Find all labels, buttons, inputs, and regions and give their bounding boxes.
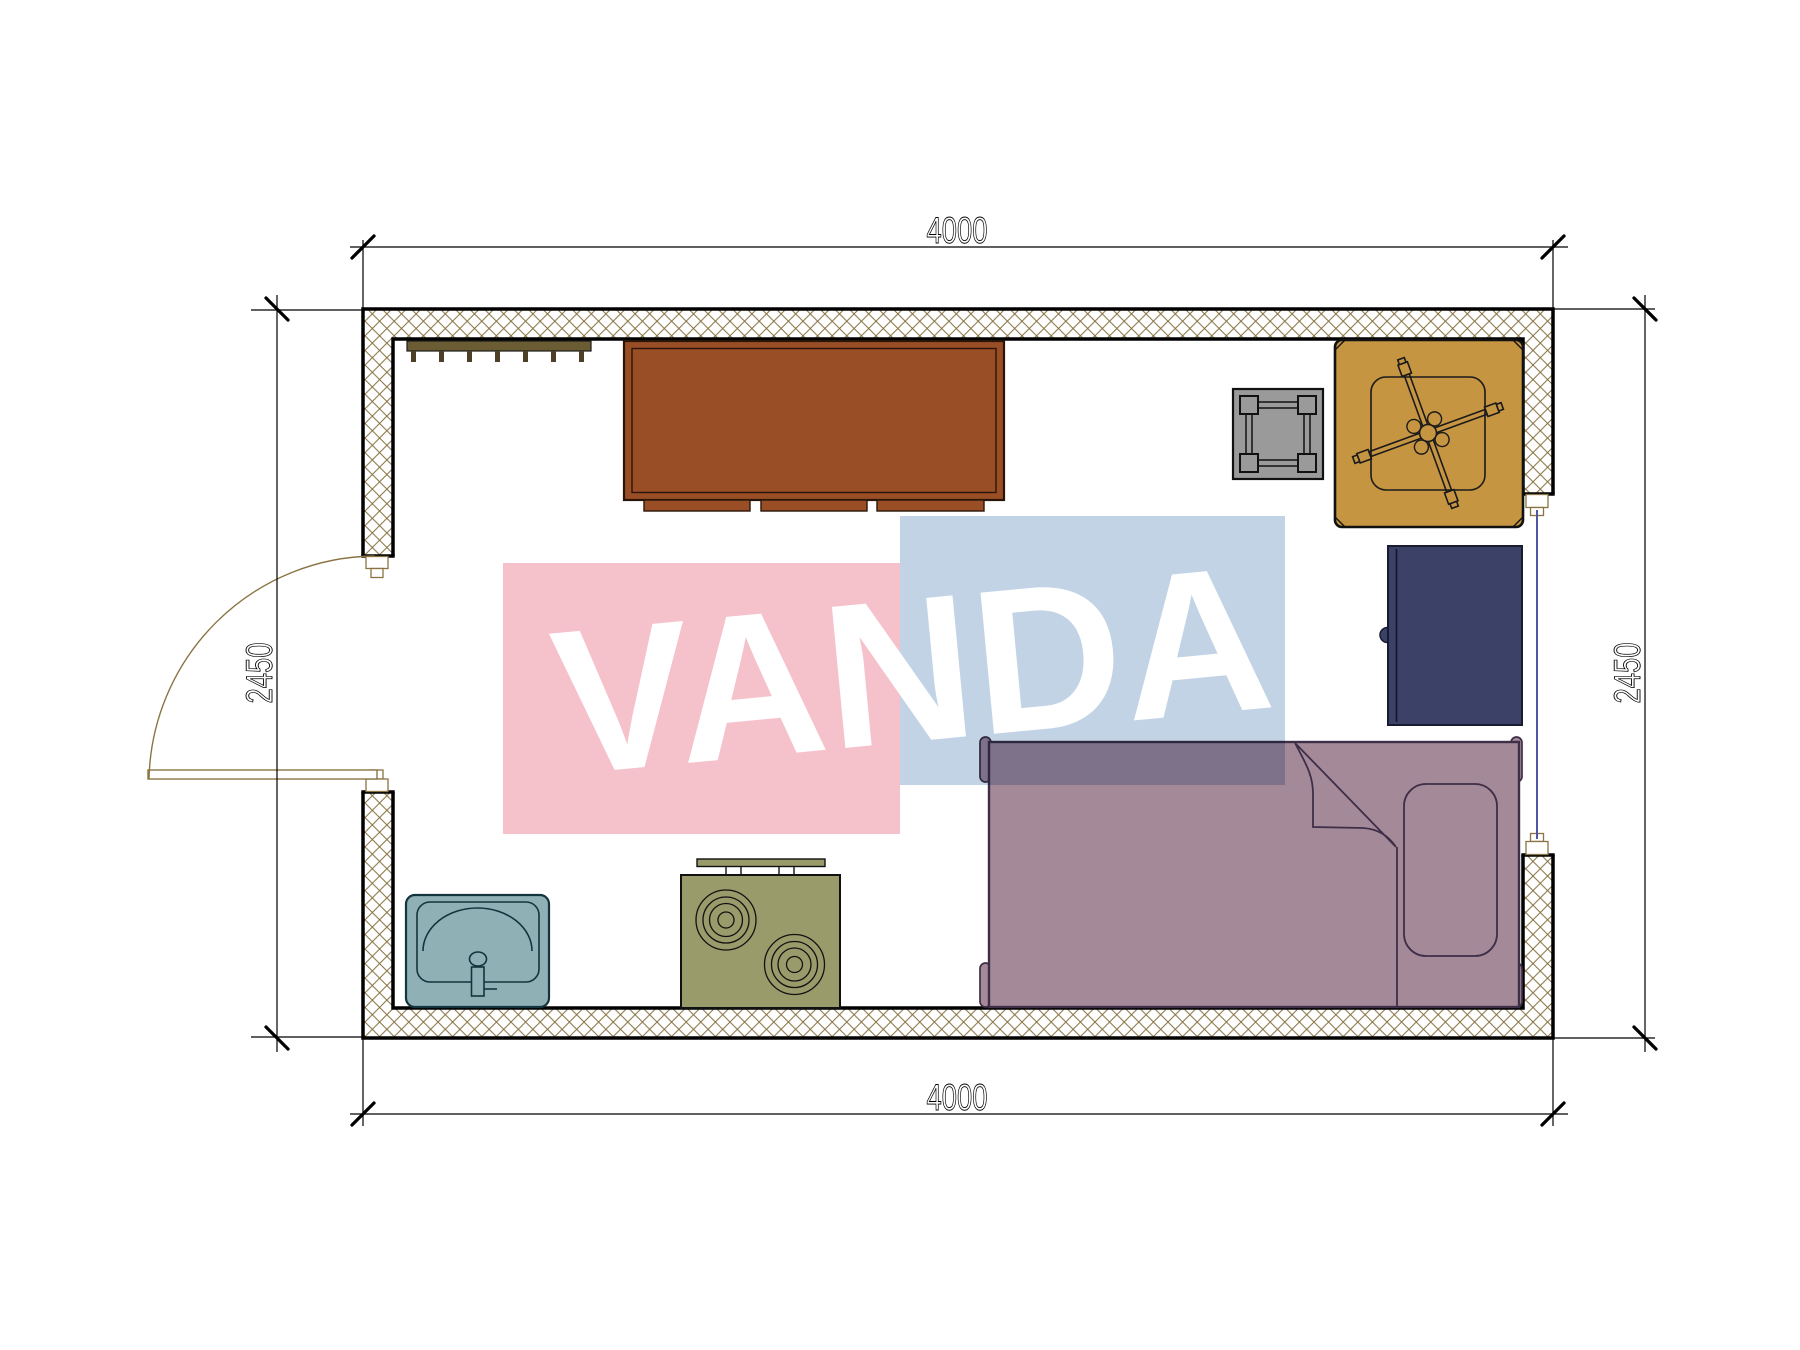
svg-text:2450: 2450: [1607, 643, 1648, 704]
svg-text:4000: 4000: [927, 210, 988, 251]
svg-text:2450: 2450: [239, 643, 280, 704]
svg-text:4000: 4000: [927, 1077, 988, 1118]
